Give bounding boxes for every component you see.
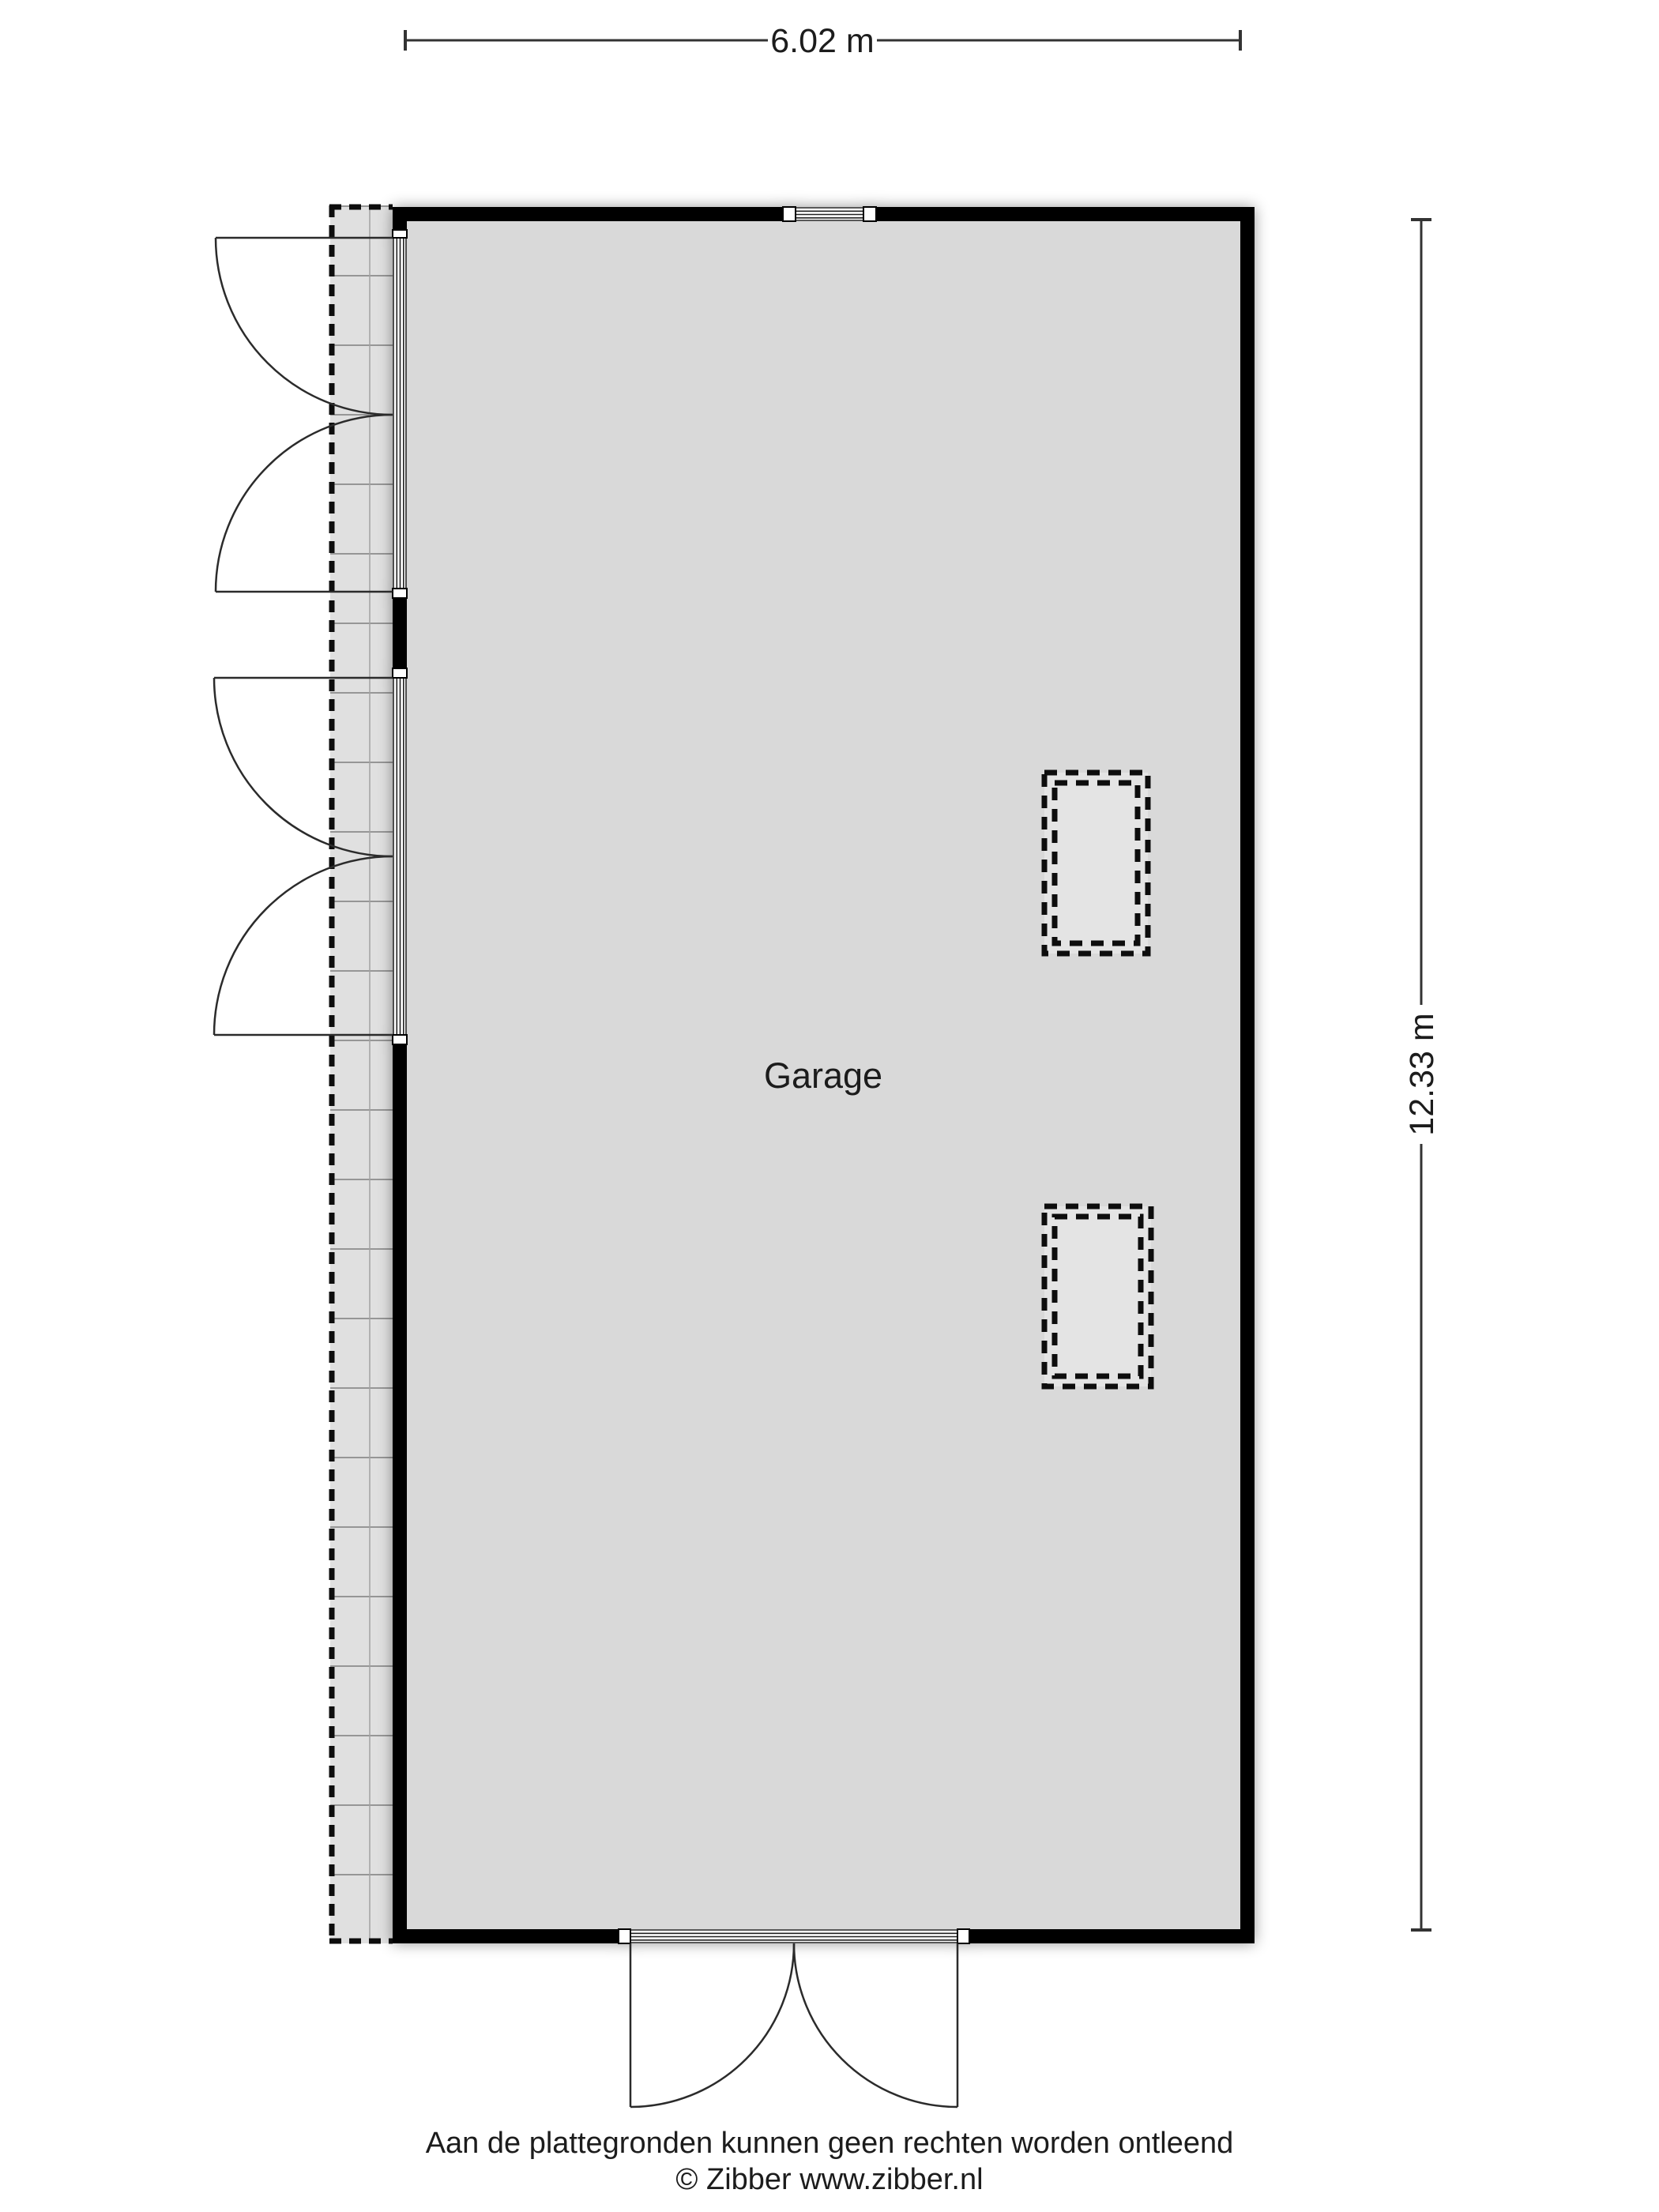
footer-disclaimer: Aan de plattegronden kunnen geen rechten… <box>426 2127 1234 2160</box>
room-label: Garage <box>764 1055 882 1096</box>
double-door-bottom <box>630 1943 957 2107</box>
wall-right <box>1240 207 1255 1943</box>
glazing-left-upper <box>393 238 407 589</box>
wall-bottom-right-segment <box>969 1929 1255 1943</box>
wall-left-lower <box>393 1044 407 1943</box>
window-top <box>783 207 876 221</box>
floor-plan-page: 6.02 m 12.33 m Garage Aan de plattegrond… <box>0 0 1659 2212</box>
wall-left-top-stub <box>393 207 407 230</box>
window-top-frame-right <box>863 207 876 221</box>
skylight-lower <box>1044 1206 1151 1386</box>
wall-left-pier <box>393 598 407 668</box>
dimension-width-label: 6.02 m <box>770 22 874 60</box>
wall-top-left-segment <box>393 207 783 221</box>
bottom-door-frame-left <box>619 1929 630 1943</box>
wall-bottom-left-segment <box>393 1929 619 1943</box>
dimension-height-label: 12.33 m <box>1403 1013 1441 1135</box>
left-overhang-strip <box>329 205 393 1943</box>
glazing-bottom-door <box>619 1929 969 1943</box>
floor-plan-svg: 6.02 m 12.33 m Garage Aan de plattegrond… <box>0 0 1659 2212</box>
wall-top-right-segment <box>876 207 1255 221</box>
glazing-left-lower <box>393 678 407 1035</box>
footer-copyright: © Zibber www.zibber.nl <box>675 2163 983 2196</box>
overhang-tiles <box>330 205 393 1943</box>
bottom-door-frame-right <box>957 1929 969 1943</box>
window-top-frame-left <box>783 207 796 221</box>
skylight-upper <box>1044 773 1148 954</box>
